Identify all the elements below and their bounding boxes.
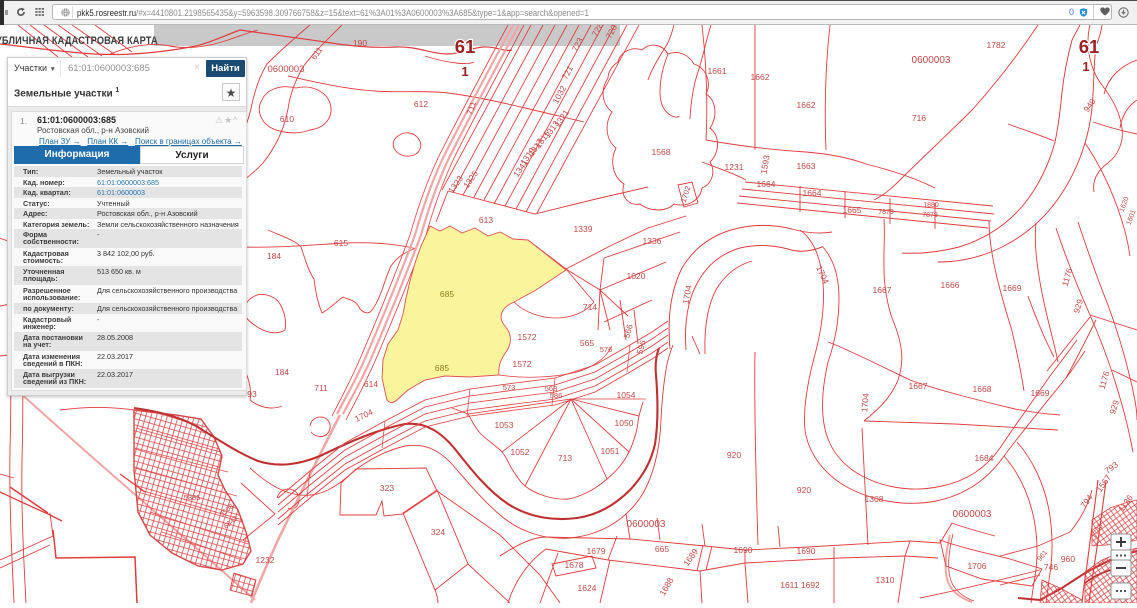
svg-text:0600003: 0600003 bbox=[912, 55, 951, 66]
svg-text:1568: 1568 bbox=[652, 147, 671, 157]
svg-text:93: 93 bbox=[247, 389, 257, 399]
svg-text:1308: 1308 bbox=[865, 494, 884, 504]
svg-text:1336: 1336 bbox=[643, 236, 662, 246]
svg-text:716: 716 bbox=[912, 113, 926, 123]
svg-text:1690: 1690 bbox=[734, 545, 753, 555]
svg-text:0600003: 0600003 bbox=[268, 64, 305, 75]
svg-text:610: 610 bbox=[280, 114, 294, 124]
svg-text:1662: 1662 bbox=[751, 72, 770, 82]
svg-text:1572: 1572 bbox=[518, 332, 537, 342]
svg-text:1051: 1051 bbox=[601, 446, 620, 456]
svg-text:184: 184 bbox=[267, 251, 281, 261]
svg-text:61: 61 bbox=[1079, 36, 1100, 57]
svg-text:614: 614 bbox=[364, 379, 378, 389]
svg-text:184: 184 bbox=[275, 367, 289, 377]
svg-text:1: 1 bbox=[461, 64, 468, 79]
svg-text:7879: 7879 bbox=[878, 209, 894, 216]
svg-text:573: 573 bbox=[503, 383, 516, 392]
svg-text:1572: 1572 bbox=[513, 359, 532, 369]
svg-text:615: 615 bbox=[334, 238, 348, 248]
svg-text:1782: 1782 bbox=[987, 40, 1006, 50]
svg-text:1664: 1664 bbox=[803, 188, 822, 198]
svg-text:190: 190 bbox=[353, 38, 367, 48]
svg-text:685: 685 bbox=[440, 289, 454, 299]
svg-text:1667: 1667 bbox=[873, 285, 892, 295]
svg-text:1690: 1690 bbox=[797, 546, 816, 556]
svg-text:1052: 1052 bbox=[511, 447, 530, 457]
svg-text:1310: 1310 bbox=[876, 575, 895, 585]
svg-text:1684: 1684 bbox=[975, 453, 994, 463]
svg-text:612: 612 bbox=[414, 99, 428, 109]
svg-text:1880: 1880 bbox=[923, 202, 939, 209]
svg-text:1662: 1662 bbox=[797, 100, 816, 110]
svg-text:1665: 1665 bbox=[843, 205, 862, 215]
svg-text:1339: 1339 bbox=[574, 224, 593, 234]
svg-text:565: 565 bbox=[580, 338, 594, 348]
svg-text:323: 323 bbox=[380, 483, 394, 493]
svg-text:1667: 1667 bbox=[909, 381, 928, 391]
svg-text:960: 960 bbox=[1061, 554, 1075, 564]
svg-text:0600003: 0600003 bbox=[627, 519, 666, 530]
svg-text:613: 613 bbox=[479, 215, 493, 225]
svg-text:714: 714 bbox=[583, 302, 597, 312]
svg-text:1: 1 bbox=[1082, 59, 1089, 74]
svg-text:1050: 1050 bbox=[615, 418, 634, 428]
svg-text:576: 576 bbox=[600, 345, 613, 354]
svg-text:7879: 7879 bbox=[922, 212, 938, 219]
svg-text:1661: 1661 bbox=[708, 66, 727, 76]
svg-text:1611 1692: 1611 1692 bbox=[780, 580, 820, 590]
svg-text:61: 61 bbox=[455, 36, 476, 57]
svg-text:1706: 1706 bbox=[968, 561, 987, 571]
svg-text:1668: 1668 bbox=[973, 384, 992, 394]
svg-text:1020: 1020 bbox=[627, 271, 646, 281]
svg-text:1053: 1053 bbox=[495, 420, 514, 430]
svg-text:685: 685 bbox=[435, 363, 449, 373]
svg-text:920: 920 bbox=[797, 485, 811, 495]
svg-text:1664: 1664 bbox=[757, 179, 776, 189]
svg-text:1054: 1054 bbox=[617, 390, 636, 400]
svg-text:1666: 1666 bbox=[941, 280, 960, 290]
svg-text:1704: 1704 bbox=[859, 393, 871, 413]
svg-text:1232: 1232 bbox=[256, 555, 275, 565]
svg-text:920: 920 bbox=[727, 450, 741, 460]
svg-text:665: 665 bbox=[655, 544, 669, 554]
svg-text:713: 713 bbox=[558, 453, 572, 463]
svg-text:1678: 1678 bbox=[565, 560, 584, 570]
svg-text:1669: 1669 bbox=[1003, 283, 1022, 293]
svg-text:0600003: 0600003 bbox=[953, 509, 992, 520]
svg-text:1669: 1669 bbox=[1031, 388, 1050, 398]
svg-text:586: 586 bbox=[550, 391, 563, 400]
svg-text:1231: 1231 bbox=[725, 162, 744, 172]
svg-text:1679: 1679 bbox=[587, 546, 606, 556]
svg-text:1624: 1624 bbox=[578, 583, 597, 593]
svg-text:324: 324 bbox=[431, 527, 445, 537]
svg-text:1663: 1663 bbox=[797, 161, 816, 171]
svg-text:5885: 5885 bbox=[184, 493, 201, 502]
svg-text:746: 746 bbox=[1044, 562, 1058, 572]
svg-text:711: 711 bbox=[314, 383, 328, 393]
